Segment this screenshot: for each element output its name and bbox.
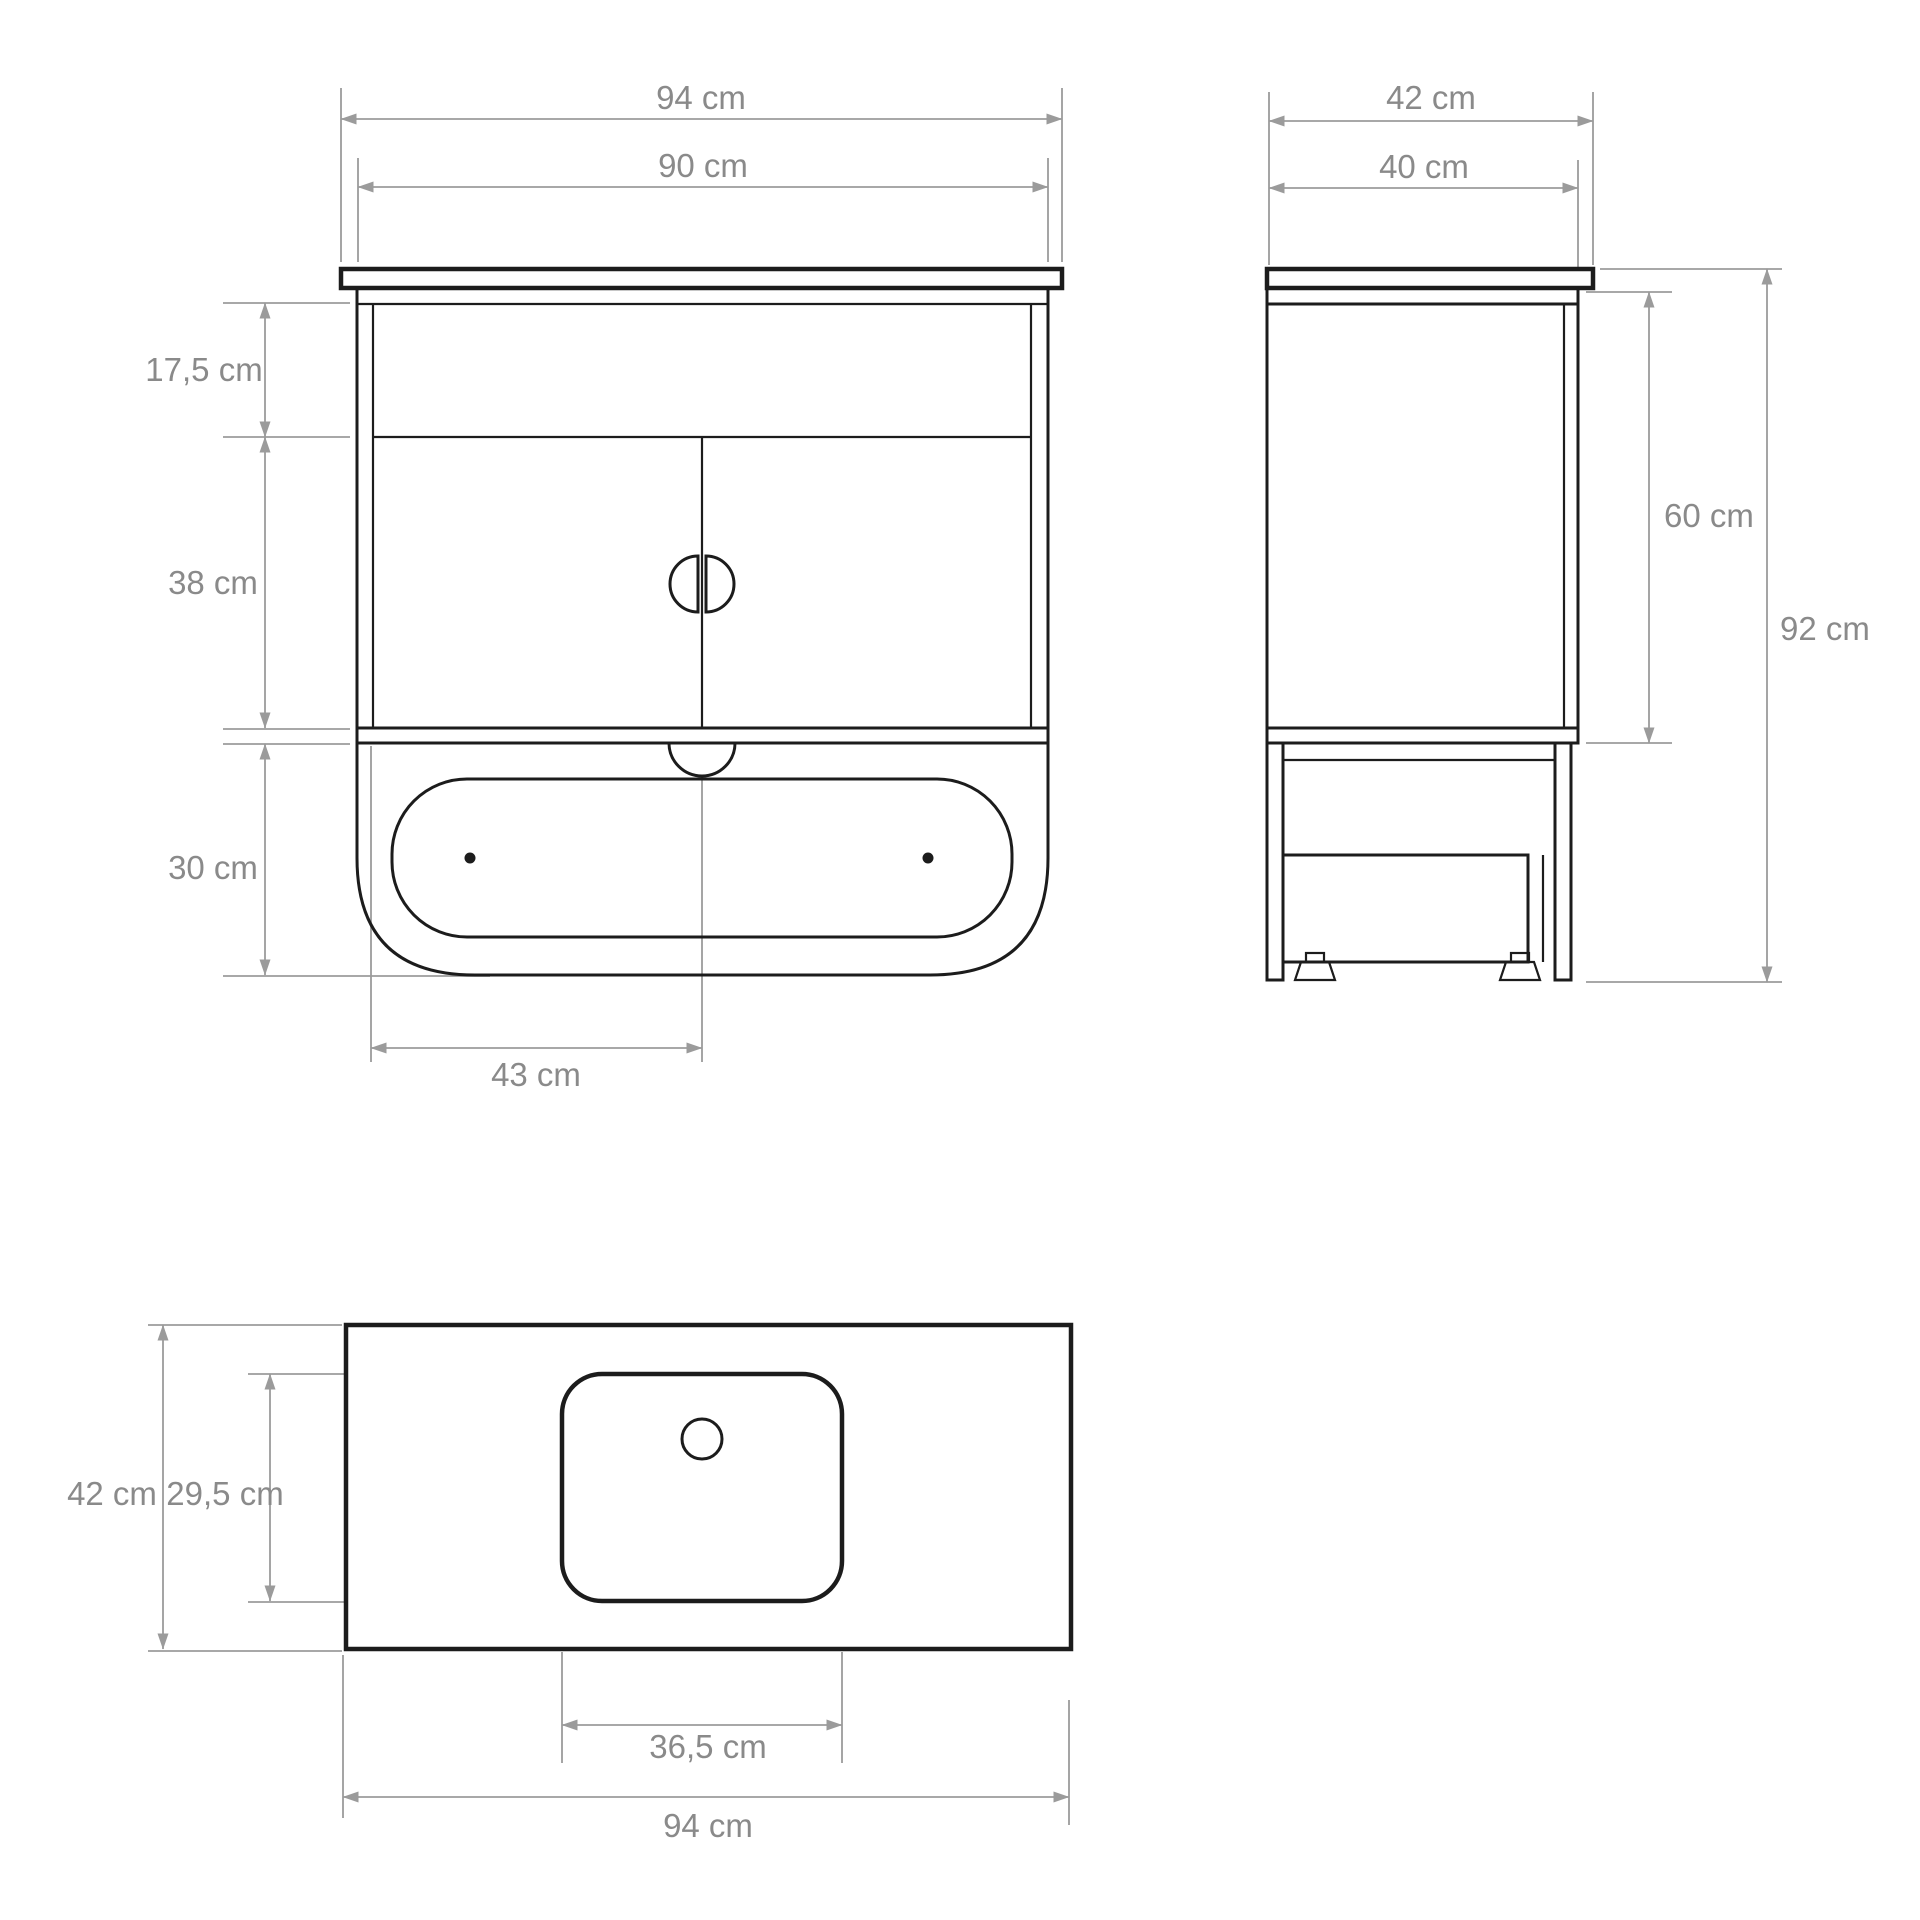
front-top-height-label: 17,5 cm xyxy=(145,351,262,388)
top-rail-side xyxy=(1267,288,1578,304)
side-inner-depth-label: 40 cm xyxy=(1379,148,1469,185)
door-handle-right xyxy=(706,556,734,612)
top-view: 42 cm 29,5 cm 36,5 cm 94 cm xyxy=(67,1325,1071,1844)
side-total-height-label: 92 cm xyxy=(1780,610,1870,647)
door-handle-left xyxy=(670,556,698,612)
front-view: 94 cm 90 cm 17,5 cm 38 cm 30 cm 43 cm xyxy=(145,79,1062,1093)
foot-right xyxy=(1500,962,1540,980)
side-outer-depth-label: 42 cm xyxy=(1386,79,1476,116)
front-bottom-height-label: 30 cm xyxy=(168,849,258,886)
side-view: 42 cm 40 cm 60 cm 92 cm xyxy=(1267,79,1870,982)
drawer-finger-notch xyxy=(669,743,735,776)
leg-back xyxy=(1267,743,1283,980)
front-middle-height-label: 38 cm xyxy=(168,564,258,601)
vanity-technical-drawing: 94 cm 90 cm 17,5 cm 38 cm 30 cm 43 cm xyxy=(0,0,1920,1920)
drawer-knob-left xyxy=(465,853,476,864)
countertop-front xyxy=(341,269,1062,288)
leg-front xyxy=(1555,743,1571,980)
top-basin-width-label: 36,5 cm xyxy=(649,1728,766,1765)
front-outer-width-label: 94 cm xyxy=(656,79,746,116)
cabinet-body-side xyxy=(1267,304,1578,728)
faucet-hole xyxy=(682,1419,722,1459)
top-depth-label: 42 cm xyxy=(67,1475,157,1512)
top-width-label: 94 cm xyxy=(663,1807,753,1844)
countertop-side xyxy=(1267,269,1593,288)
drawing-sheet: 94 cm 90 cm 17,5 cm 38 cm 30 cm 43 cm xyxy=(0,0,1920,1920)
drawer-knob-right xyxy=(923,853,934,864)
side-cabinet-height-label: 60 cm xyxy=(1664,497,1754,534)
front-center-offset-label: 43 cm xyxy=(491,1056,581,1093)
front-inner-width-label: 90 cm xyxy=(658,147,748,184)
bottom-band-side xyxy=(1267,728,1578,743)
foot-left xyxy=(1295,962,1335,980)
top-basin-depth-label: 29,5 cm xyxy=(166,1475,283,1512)
drawer-box-side xyxy=(1283,855,1528,962)
